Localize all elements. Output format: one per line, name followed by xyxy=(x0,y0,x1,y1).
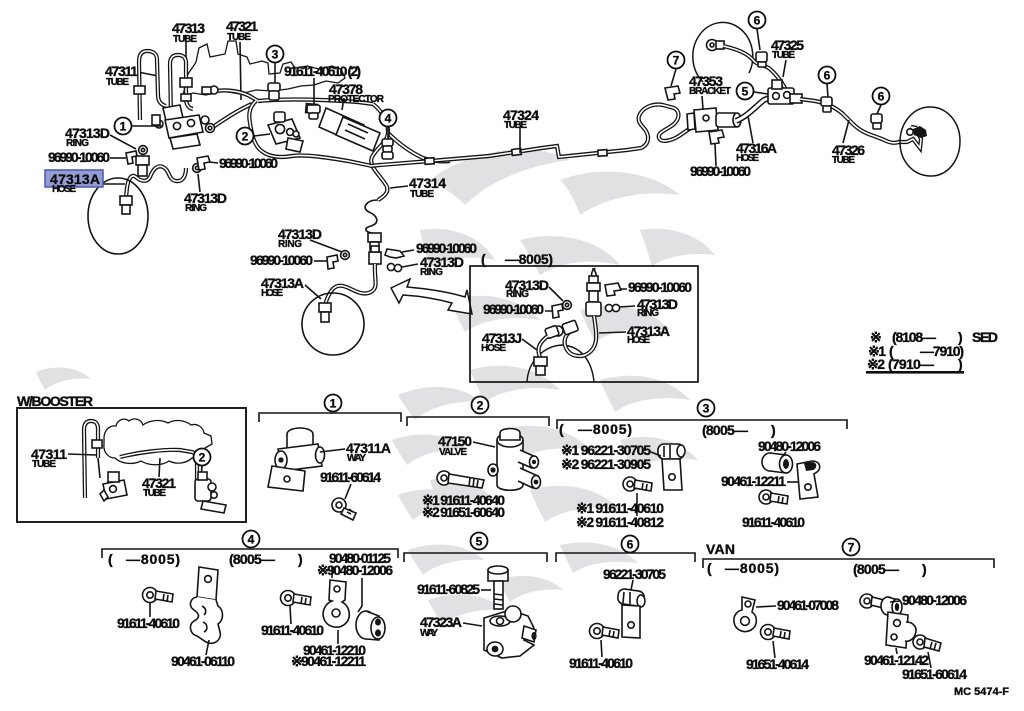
svg-text:TUBE: TUBE xyxy=(32,459,56,470)
svg-text:(8005—: (8005— xyxy=(229,551,275,567)
svg-text:91651-40614: 91651-40614 xyxy=(746,656,809,672)
svg-text:(8005—: (8005— xyxy=(702,422,748,438)
svg-text:※2: ※2 xyxy=(867,356,885,372)
svg-text:TUBE: TUBE xyxy=(772,50,795,61)
svg-text:W/BOOSTER: W/BOOSTER xyxy=(17,393,93,409)
svg-text:91611-40610: 91611-40610 xyxy=(261,622,324,638)
svg-text:96990-10060: 96990-10060 xyxy=(250,252,313,268)
svg-text:96221-30705: 96221-30705 xyxy=(603,566,666,582)
svg-text:WAY: WAY xyxy=(420,628,438,639)
svg-text:※90480-12006: ※90480-12006 xyxy=(317,562,393,578)
svg-text:HOSE: HOSE xyxy=(481,343,506,354)
svg-text:91611-40610 (2): 91611-40610 (2) xyxy=(284,63,361,79)
svg-text:RING: RING xyxy=(66,138,89,149)
svg-text:): ) xyxy=(958,356,963,372)
svg-text:(: ( xyxy=(707,560,712,576)
svg-text:96990-10060: 96990-10060 xyxy=(628,279,692,295)
svg-text:6: 6 xyxy=(824,69,831,83)
svg-text:): ) xyxy=(298,551,303,567)
svg-text:90461-12211: 90461-12211 xyxy=(721,473,786,489)
svg-text:(8005—: (8005— xyxy=(853,561,899,577)
svg-text:7: 7 xyxy=(673,54,680,68)
svg-text:VALVE: VALVE xyxy=(439,447,467,458)
svg-text:TUBE: TUBE xyxy=(410,189,434,200)
svg-text:※90461-12211: ※90461-12211 xyxy=(291,653,366,669)
svg-text:RING: RING xyxy=(185,203,207,214)
svg-text:4: 4 xyxy=(248,533,255,547)
svg-text:※2 91651-60640: ※2 91651-60640 xyxy=(422,504,505,520)
svg-text:6: 6 xyxy=(754,14,761,28)
svg-text:RING: RING xyxy=(420,267,443,278)
svg-text:6: 6 xyxy=(627,538,634,552)
svg-text:96990-10060: 96990-10060 xyxy=(219,155,278,171)
svg-text:2: 2 xyxy=(477,399,484,413)
svg-text:91611-60614: 91611-60614 xyxy=(320,469,381,485)
svg-text:): ) xyxy=(771,422,776,438)
svg-text:BRACKET: BRACKET xyxy=(689,86,731,97)
svg-text:3: 3 xyxy=(703,402,710,416)
svg-text:HOSE: HOSE xyxy=(261,288,283,299)
svg-text:91611-40610: 91611-40610 xyxy=(569,655,633,671)
svg-text:(7910—: (7910— xyxy=(888,356,934,372)
svg-text:TUBE: TUBE xyxy=(143,488,166,499)
svg-text:※2 96221-30905: ※2 96221-30905 xyxy=(561,456,651,472)
svg-text:2: 2 xyxy=(242,130,249,144)
svg-text:90461-07008: 90461-07008 xyxy=(777,597,839,613)
svg-text:TUBE: TUBE xyxy=(106,77,129,88)
svg-text:(: ( xyxy=(559,421,564,437)
svg-text:90480-12006: 90480-12006 xyxy=(902,592,967,608)
svg-text:1: 1 xyxy=(330,397,337,411)
svg-text:1: 1 xyxy=(120,120,127,134)
svg-text:RING: RING xyxy=(278,239,302,250)
svg-text:90480-12006: 90480-12006 xyxy=(758,438,821,454)
svg-text:HOSE: HOSE xyxy=(52,184,76,195)
svg-text:TUBE: TUBE xyxy=(832,155,855,166)
svg-text:PROTECTOR: PROTECTOR xyxy=(328,94,385,105)
svg-text:VAN: VAN xyxy=(706,541,735,557)
svg-text:RING: RING xyxy=(637,308,659,319)
svg-text:RING: RING xyxy=(506,289,529,300)
svg-text:—8005): —8005) xyxy=(126,551,180,567)
svg-text:): ) xyxy=(922,561,927,577)
svg-text:TUBE: TUBE xyxy=(227,32,251,43)
svg-text:TUBE: TUBE xyxy=(173,34,197,45)
svg-text:96990-10060: 96990-10060 xyxy=(483,301,544,317)
svg-text:90461-06110: 90461-06110 xyxy=(171,653,235,669)
svg-text:2: 2 xyxy=(199,451,206,465)
svg-text:91611-40610: 91611-40610 xyxy=(742,514,805,530)
svg-text:—8005): —8005) xyxy=(505,251,553,267)
svg-text:4: 4 xyxy=(385,112,392,126)
svg-text:91611-60825: 91611-60825 xyxy=(417,581,480,597)
svg-text:5: 5 xyxy=(476,535,483,549)
svg-text:(: ( xyxy=(481,251,486,267)
svg-text:96990-10060: 96990-10060 xyxy=(690,163,751,179)
svg-text:MC 5474-F: MC 5474-F xyxy=(954,686,1009,698)
svg-text:7: 7 xyxy=(848,541,855,555)
svg-text:(: ( xyxy=(108,551,113,567)
svg-text:—8005): —8005) xyxy=(725,560,779,576)
svg-text:3: 3 xyxy=(272,48,279,62)
svg-text:96990-10060: 96990-10060 xyxy=(48,149,110,165)
svg-text:6: 6 xyxy=(878,90,885,104)
svg-text:—8005): —8005) xyxy=(578,421,632,437)
svg-text:5: 5 xyxy=(742,85,749,99)
svg-text:HOSE: HOSE xyxy=(627,335,650,346)
svg-text:WAY: WAY xyxy=(347,453,366,464)
svg-text:※2 91611-40812: ※2 91611-40812 xyxy=(576,514,664,530)
svg-text:TUBE: TUBE xyxy=(504,120,527,131)
svg-text:91651-60614: 91651-60614 xyxy=(902,666,967,682)
svg-text:SED: SED xyxy=(972,329,998,345)
svg-text:91611-40610: 91611-40610 xyxy=(117,615,180,631)
